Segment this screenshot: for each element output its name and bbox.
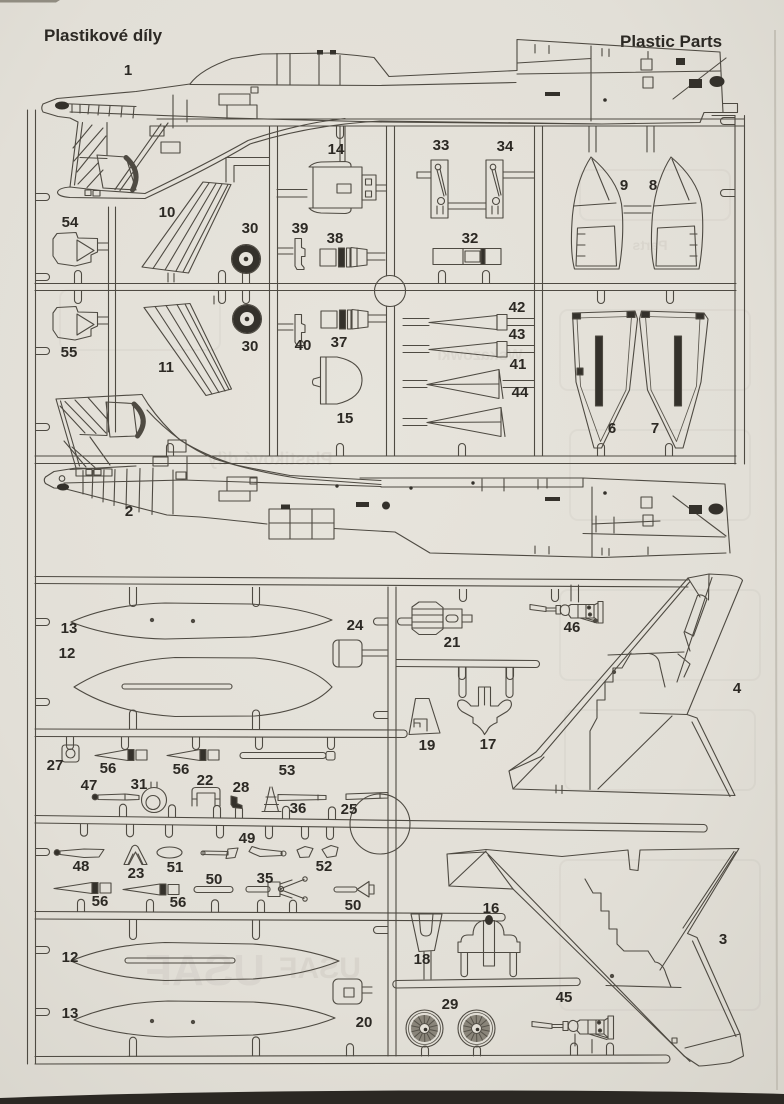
svg-text:38: 38 bbox=[327, 230, 344, 247]
svg-text:54: 54 bbox=[62, 214, 79, 231]
svg-text:45: 45 bbox=[556, 989, 573, 1006]
svg-text:43: 43 bbox=[509, 326, 526, 343]
svg-text:8: 8 bbox=[649, 177, 657, 194]
svg-text:48: 48 bbox=[73, 858, 90, 875]
svg-text:15: 15 bbox=[337, 410, 354, 427]
svg-text:19: 19 bbox=[419, 737, 436, 754]
svg-text:17: 17 bbox=[480, 736, 497, 753]
svg-text:18: 18 bbox=[414, 951, 431, 968]
svg-text:2: 2 bbox=[125, 503, 133, 520]
svg-text:6: 6 bbox=[608, 420, 616, 437]
svg-text:56: 56 bbox=[92, 893, 109, 910]
svg-text:34: 34 bbox=[497, 138, 514, 155]
svg-text:30: 30 bbox=[242, 338, 259, 355]
svg-text:30: 30 bbox=[242, 220, 259, 237]
svg-text:53: 53 bbox=[279, 762, 296, 779]
svg-text:14: 14 bbox=[328, 141, 345, 158]
svg-text:Plastikové díly: Plastikové díly bbox=[44, 26, 163, 45]
svg-text:50: 50 bbox=[206, 871, 223, 888]
svg-text:4: 4 bbox=[733, 680, 742, 697]
svg-text:22: 22 bbox=[197, 772, 214, 789]
svg-text:52: 52 bbox=[316, 858, 333, 875]
svg-text:USAF: USAF bbox=[279, 952, 361, 985]
svg-text:31: 31 bbox=[131, 776, 148, 793]
svg-text:13: 13 bbox=[62, 1005, 79, 1022]
svg-text:16: 16 bbox=[483, 900, 500, 917]
svg-text:33: 33 bbox=[433, 137, 450, 154]
svg-text:7: 7 bbox=[651, 420, 659, 437]
svg-text:35: 35 bbox=[257, 870, 274, 887]
svg-text:37: 37 bbox=[331, 334, 348, 351]
svg-text:40: 40 bbox=[295, 337, 312, 354]
svg-text:11: 11 bbox=[158, 359, 174, 376]
svg-text:50: 50 bbox=[345, 897, 362, 914]
svg-text:56: 56 bbox=[170, 894, 187, 911]
svg-text:24: 24 bbox=[347, 617, 364, 634]
svg-text:20: 20 bbox=[356, 1014, 373, 1031]
svg-text:12: 12 bbox=[62, 949, 79, 966]
svg-text:42: 42 bbox=[509, 299, 526, 316]
svg-text:13: 13 bbox=[61, 620, 78, 637]
svg-text:28: 28 bbox=[233, 779, 250, 796]
svg-text:56: 56 bbox=[173, 761, 190, 778]
svg-text:44: 44 bbox=[512, 384, 529, 401]
svg-text:29: 29 bbox=[442, 996, 459, 1013]
svg-text:25: 25 bbox=[341, 801, 358, 818]
svg-text:10: 10 bbox=[159, 204, 176, 221]
svg-text:21: 21 bbox=[444, 634, 461, 651]
svg-text:41: 41 bbox=[510, 356, 527, 373]
svg-text:47: 47 bbox=[81, 777, 98, 794]
svg-text:3: 3 bbox=[719, 931, 727, 948]
svg-text:51: 51 bbox=[167, 859, 184, 876]
svg-text:USAF: USAF bbox=[145, 946, 265, 995]
svg-text:39: 39 bbox=[292, 220, 309, 237]
svg-text:55: 55 bbox=[61, 344, 78, 361]
svg-text:46: 46 bbox=[564, 619, 581, 636]
svg-text:32: 32 bbox=[462, 230, 479, 247]
svg-text:Plastic Parts: Plastic Parts bbox=[620, 32, 722, 51]
svg-text:36: 36 bbox=[290, 800, 307, 817]
svg-text:49: 49 bbox=[239, 830, 256, 847]
svg-text:27: 27 bbox=[47, 757, 64, 774]
svg-text:1: 1 bbox=[124, 62, 132, 79]
svg-text:Parts: Parts bbox=[632, 237, 667, 253]
svg-text:23: 23 bbox=[128, 865, 145, 882]
svg-text:56: 56 bbox=[100, 760, 117, 777]
svg-text:9: 9 bbox=[620, 177, 628, 194]
svg-text:12: 12 bbox=[59, 645, 76, 662]
